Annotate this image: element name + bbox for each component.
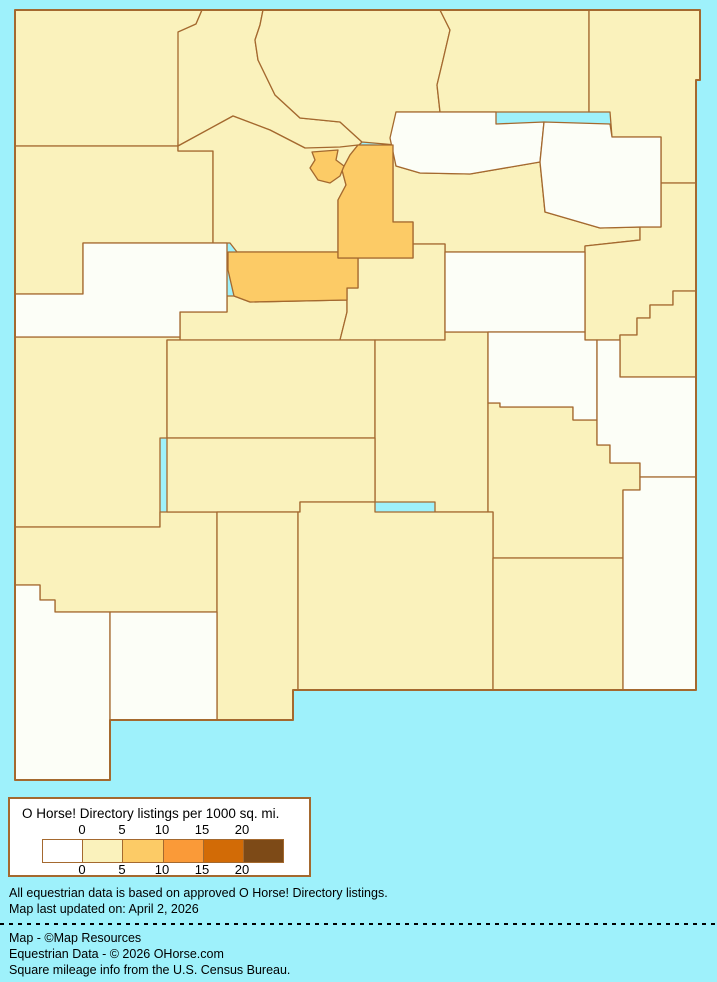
legend-swatch-0 <box>43 840 83 862</box>
legend-tick-label: 0 <box>78 822 85 837</box>
county-colfax <box>437 10 589 112</box>
legend-color-ramp <box>42 839 284 863</box>
legend-tick-label: 0 <box>78 862 85 877</box>
legend-tick-label: 10 <box>155 862 169 877</box>
county-sierra <box>167 438 375 512</box>
legend-swatch-0-5 <box>83 840 123 862</box>
county-bernalillo <box>228 252 358 302</box>
choropleth-map <box>0 0 717 800</box>
legend-swatch-10-15 <box>164 840 204 862</box>
county-dona-ana <box>217 512 298 720</box>
credit-census: Square mileage info from the U.S. Census… <box>9 963 290 977</box>
legend-tick-label: 10 <box>155 822 169 837</box>
county-catron <box>15 337 180 527</box>
legend-tick-label: 5 <box>118 862 125 877</box>
legend-ticks-bottom: 05101520 <box>10 862 309 876</box>
county-grant <box>15 512 217 612</box>
legend-swatch-15-20 <box>204 840 244 862</box>
county-hidalgo <box>15 585 110 780</box>
legend-swatch-5-10 <box>123 840 163 862</box>
county-socorro <box>167 340 375 438</box>
note-data-source: All equestrian data is based on approved… <box>9 886 388 900</box>
county-guadalupe <box>445 252 585 332</box>
legend-tick-label: 20 <box>235 822 249 837</box>
county-harding <box>540 122 661 228</box>
county-lincoln <box>375 332 488 512</box>
county-lea <box>623 477 696 690</box>
note-last-updated: Map last updated on: April 2, 2026 <box>9 902 199 916</box>
credit-map: Map - ©Map Resources <box>9 931 141 945</box>
legend-tick-label: 15 <box>195 862 209 877</box>
county-de-baca <box>488 332 597 420</box>
county-luna <box>110 612 217 720</box>
legend-tick-label: 15 <box>195 822 209 837</box>
legend-tick-label: 20 <box>235 862 249 877</box>
legend-title: O Horse! Directory listings per 1000 sq.… <box>22 806 279 821</box>
legend-ticks-top: 05101520 <box>10 822 309 836</box>
page: O Horse! Directory listings per 1000 sq.… <box>0 0 717 982</box>
county-san-juan <box>15 10 202 146</box>
county-mora <box>390 112 544 174</box>
county-eddy <box>493 558 623 690</box>
legend-tick-label: 5 <box>118 822 125 837</box>
credit-data: Equestrian Data - © 2026 OHorse.com <box>9 947 224 961</box>
county-otero <box>298 502 493 690</box>
legend: O Horse! Directory listings per 1000 sq.… <box>8 797 311 877</box>
dashed-separator <box>0 923 717 925</box>
legend-swatch-20+ <box>244 840 283 862</box>
